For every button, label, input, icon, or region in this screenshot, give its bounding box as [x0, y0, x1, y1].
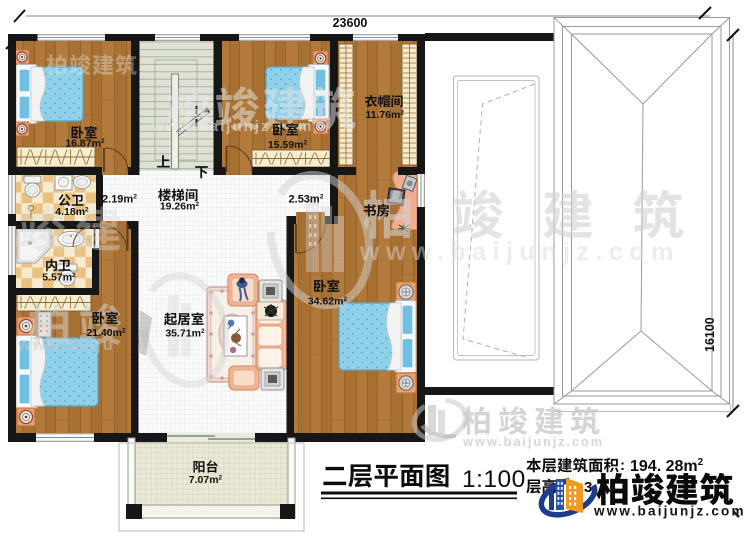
svg-text:16.87m2: 16.87m2: [65, 138, 105, 150]
svg-text:16100: 16100: [703, 317, 717, 352]
svg-text:35.71m2: 35.71m2: [165, 328, 205, 340]
svg-text:www.baiju: www.baiju: [17, 337, 115, 354]
svg-text:11.76m2: 11.76m2: [365, 109, 404, 121]
svg-text:21.40m2: 21.40m2: [86, 327, 126, 339]
svg-text:www.baijunjz.com: www.baijunjz.com: [593, 504, 746, 519]
svg-text:194. 28m2: 194. 28m2: [630, 457, 704, 475]
svg-text:19.26m2: 19.26m2: [160, 201, 200, 213]
svg-text:2.53m2: 2.53m2: [289, 194, 324, 206]
svg-text:5.57m2: 5.57m2: [42, 272, 76, 284]
svg-text:34.62m2: 34.62m2: [308, 296, 348, 308]
svg-text:www.baijunjz.com: www.baijunjz.com: [359, 238, 680, 266]
svg-text:4.18m2: 4.18m2: [55, 206, 89, 218]
svg-text:7.07m2: 7.07m2: [189, 474, 223, 486]
svg-text:2.19m2: 2.19m2: [102, 194, 137, 206]
svg-text:23600: 23600: [333, 16, 368, 30]
svg-text:15.59m2: 15.59m2: [268, 139, 308, 151]
svg-text:3: 3: [584, 479, 592, 496]
svg-text:1:100: 1:100: [462, 466, 526, 493]
svg-text:www.baijunjz.com: www.baijunjz.com: [462, 434, 604, 449]
svg-text::: :: [620, 457, 625, 474]
